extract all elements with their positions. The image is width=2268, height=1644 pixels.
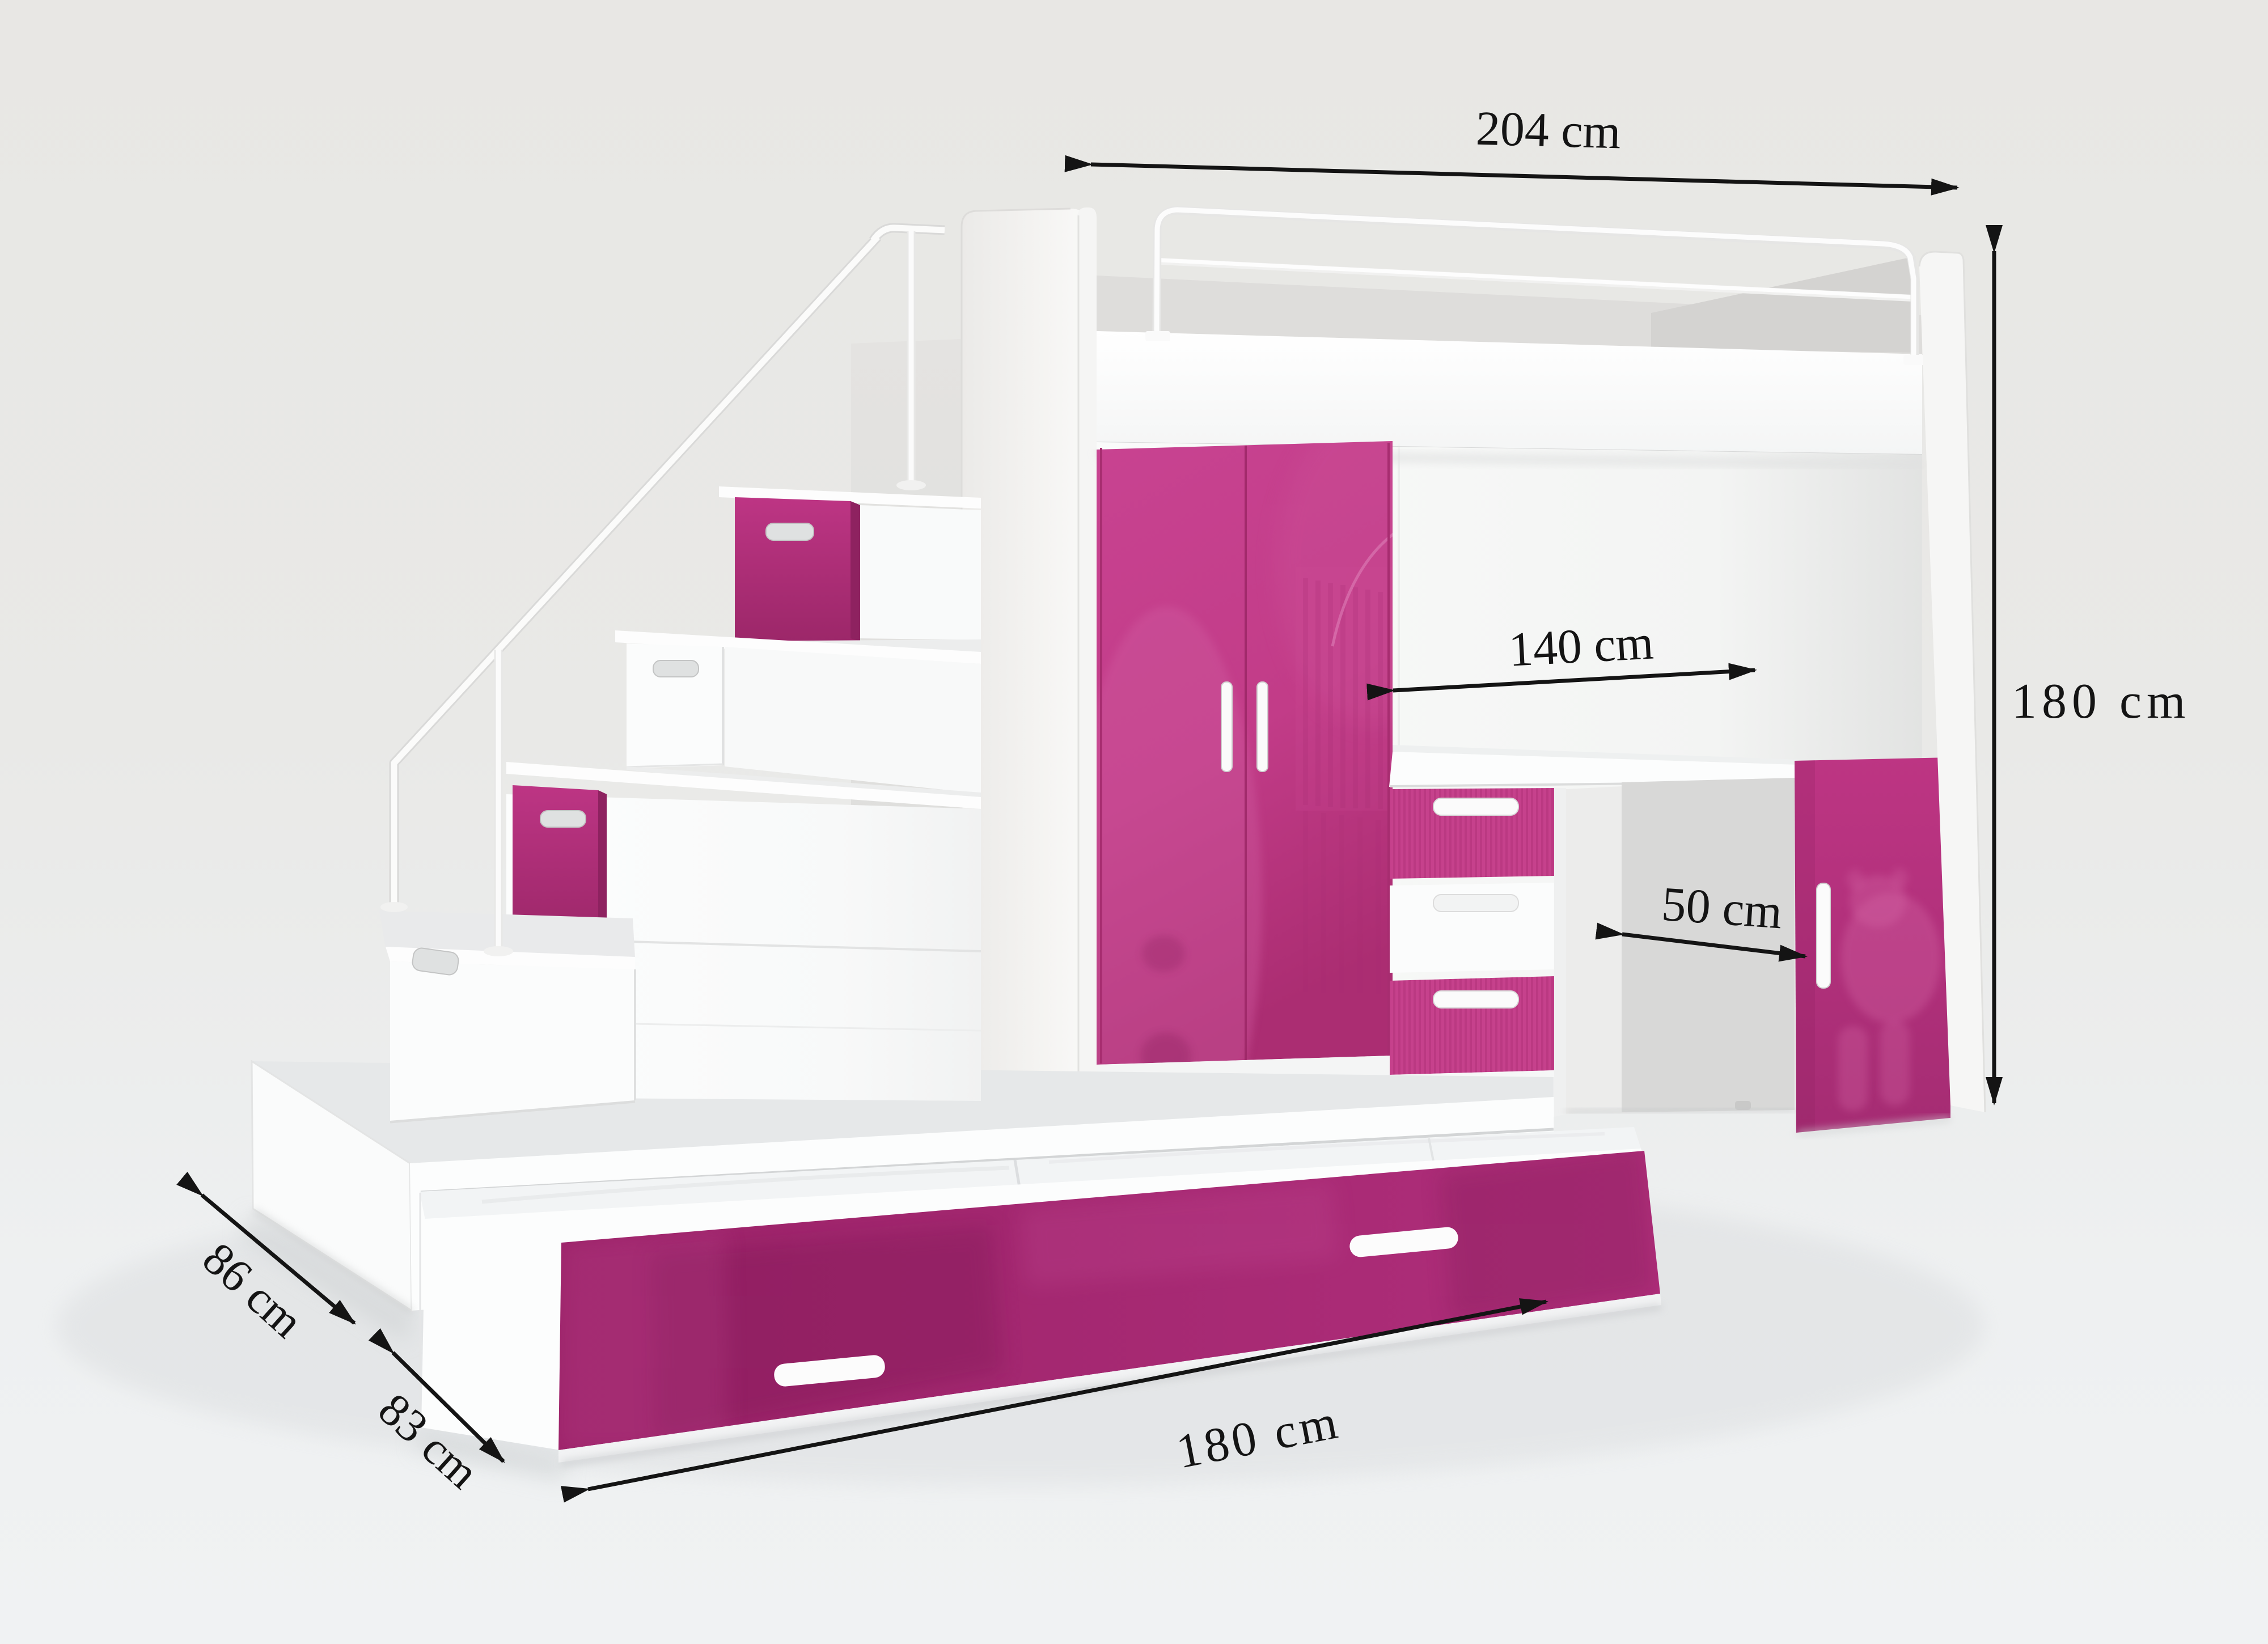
svg-text:180 cm: 180 cm: [2012, 674, 2191, 729]
svg-text:140 cm: 140 cm: [1507, 615, 1655, 676]
svg-text:50 cm: 50 cm: [1660, 876, 1784, 939]
svg-text:204 cm: 204 cm: [1475, 101, 1622, 159]
